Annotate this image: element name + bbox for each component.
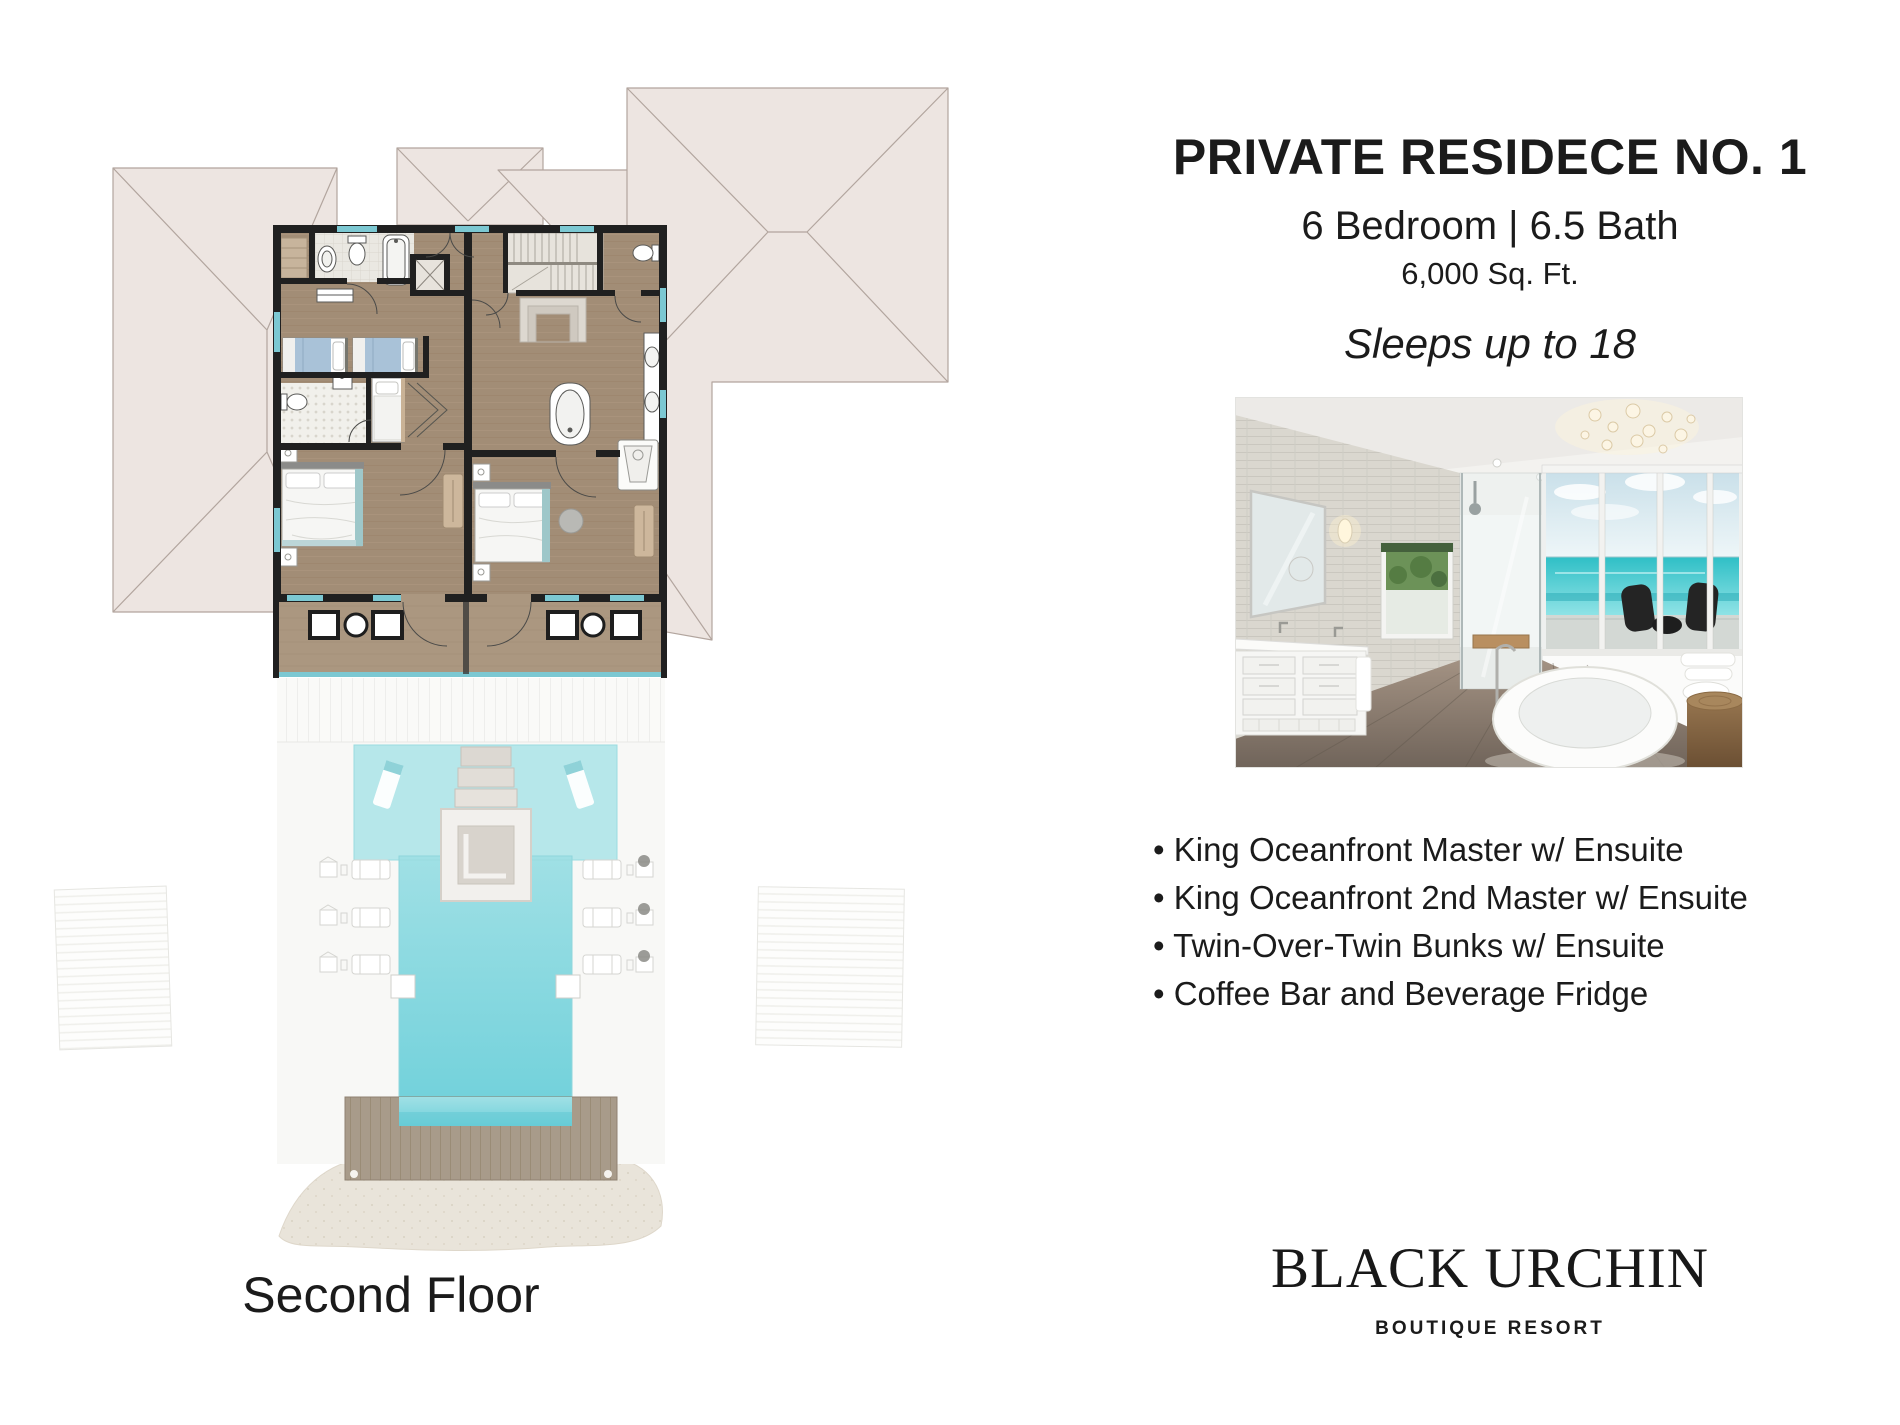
residence-area: 6,000 Sq. Ft. [1060, 256, 1900, 292]
feature-item: • Coffee Bar and Beverage Fridge [1153, 970, 1748, 1018]
right-mat [756, 887, 905, 1048]
lower-wood-deck [345, 1097, 617, 1180]
residence-specs: 6 Bedroom | 6.5 Bath [1060, 204, 1900, 249]
residence-title: PRIVATE RESIDECE NO. 1 [1060, 128, 1900, 186]
bathroom-photo [1235, 397, 1743, 768]
feature-item: • King Oceanfront Master w/ Ensuite [1153, 826, 1748, 874]
brand-logo: BLACK URCHIN [1060, 1236, 1900, 1301]
feature-item: • Twin-Over-Twin Bunks w/ Ensuite [1153, 922, 1748, 970]
closet-alcove [281, 238, 307, 278]
features-list: • King Oceanfront Master w/ Ensuite• Kin… [1153, 826, 1748, 1018]
floor-label: Second Floor [231, 1266, 551, 1324]
vestibule-trim [520, 298, 586, 342]
flyer-page: Second Floor PRIVATE RESIDECE NO. 1 6 Be… [0, 0, 1900, 1425]
left-mat [54, 886, 172, 1050]
brand-tagline: BOUTIQUE RESORT [1060, 1318, 1900, 1340]
second-floor-plan [0, 0, 960, 1425]
elevator [410, 254, 450, 296]
sleeps-note: Sleeps up to 18 [1060, 320, 1900, 368]
balcony [273, 598, 667, 678]
feature-item: • King Oceanfront 2nd Master w/ Ensuite [1153, 874, 1748, 922]
